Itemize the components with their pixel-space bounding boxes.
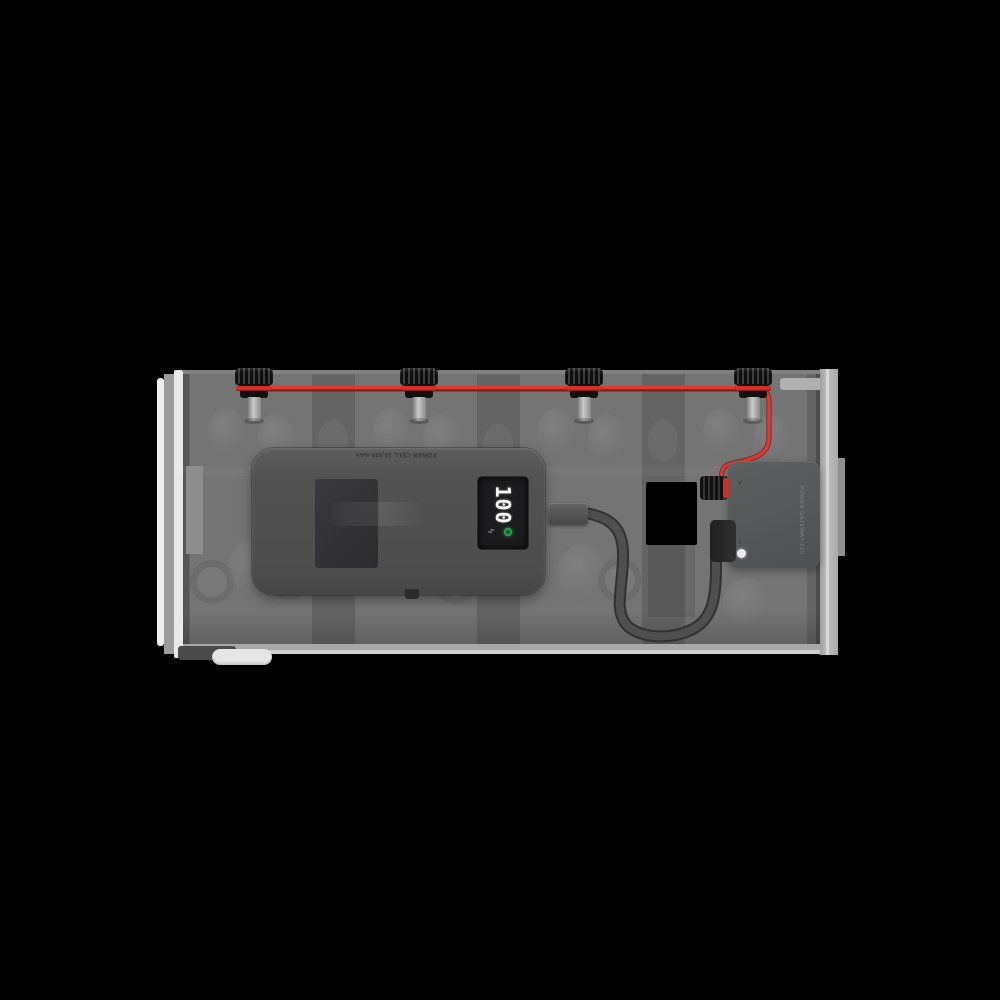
- terminal-cap: [565, 368, 603, 428]
- case-tab: [838, 458, 845, 556]
- case-shadow: [183, 610, 820, 648]
- terminal-cap: [734, 368, 772, 428]
- case-cutout: [646, 482, 697, 545]
- cap-knurl: [400, 368, 438, 385]
- case-foot: [212, 649, 272, 665]
- power-led-icon: [504, 528, 512, 536]
- bolt-icon: ϟ: [485, 525, 497, 537]
- vent-nut: [190, 560, 234, 604]
- cable-plug: [548, 503, 588, 525]
- case-end-wall: [174, 370, 183, 658]
- cap-knurl: [565, 368, 603, 385]
- post-shadow: [743, 418, 763, 424]
- cable-connector: [710, 520, 736, 562]
- case-end-wall: [157, 378, 164, 646]
- post-shadow: [409, 418, 429, 424]
- terminal-cap: [235, 368, 273, 428]
- cell-bump: [558, 544, 604, 602]
- cell-bump: [648, 420, 678, 462]
- battery-percentage: 100: [493, 483, 513, 527]
- brand-logo: [328, 502, 424, 526]
- case-end-wall: [820, 369, 838, 655]
- case-end-wall: [826, 369, 829, 655]
- case-top-edge: [780, 378, 822, 390]
- power-button: [405, 589, 419, 599]
- vent-nut: [598, 558, 642, 602]
- case-top-edge: [183, 370, 820, 374]
- cap-knurl: [734, 368, 772, 385]
- case-recess: [186, 466, 203, 554]
- post-shadow: [574, 418, 594, 424]
- gateway-label: POWER GATEWAY 12V: [798, 486, 804, 541]
- cap-knurl: [235, 368, 273, 385]
- case-bottom-edge: [183, 650, 820, 654]
- terminal-cap: [400, 368, 438, 428]
- product-render: POWER CELL 10,000 mAh 100 ϟ: [0, 0, 1000, 1000]
- post-shadow: [244, 418, 264, 424]
- chevron-left-icon: ‹: [734, 477, 746, 489]
- case-end-wall: [164, 374, 174, 654]
- power-bank-label: POWER CELL 10,000 mAh: [336, 450, 456, 457]
- status-led-icon: [737, 549, 746, 558]
- case-cutout-shadow: [648, 545, 695, 617]
- wire-connector-ring: [723, 478, 729, 498]
